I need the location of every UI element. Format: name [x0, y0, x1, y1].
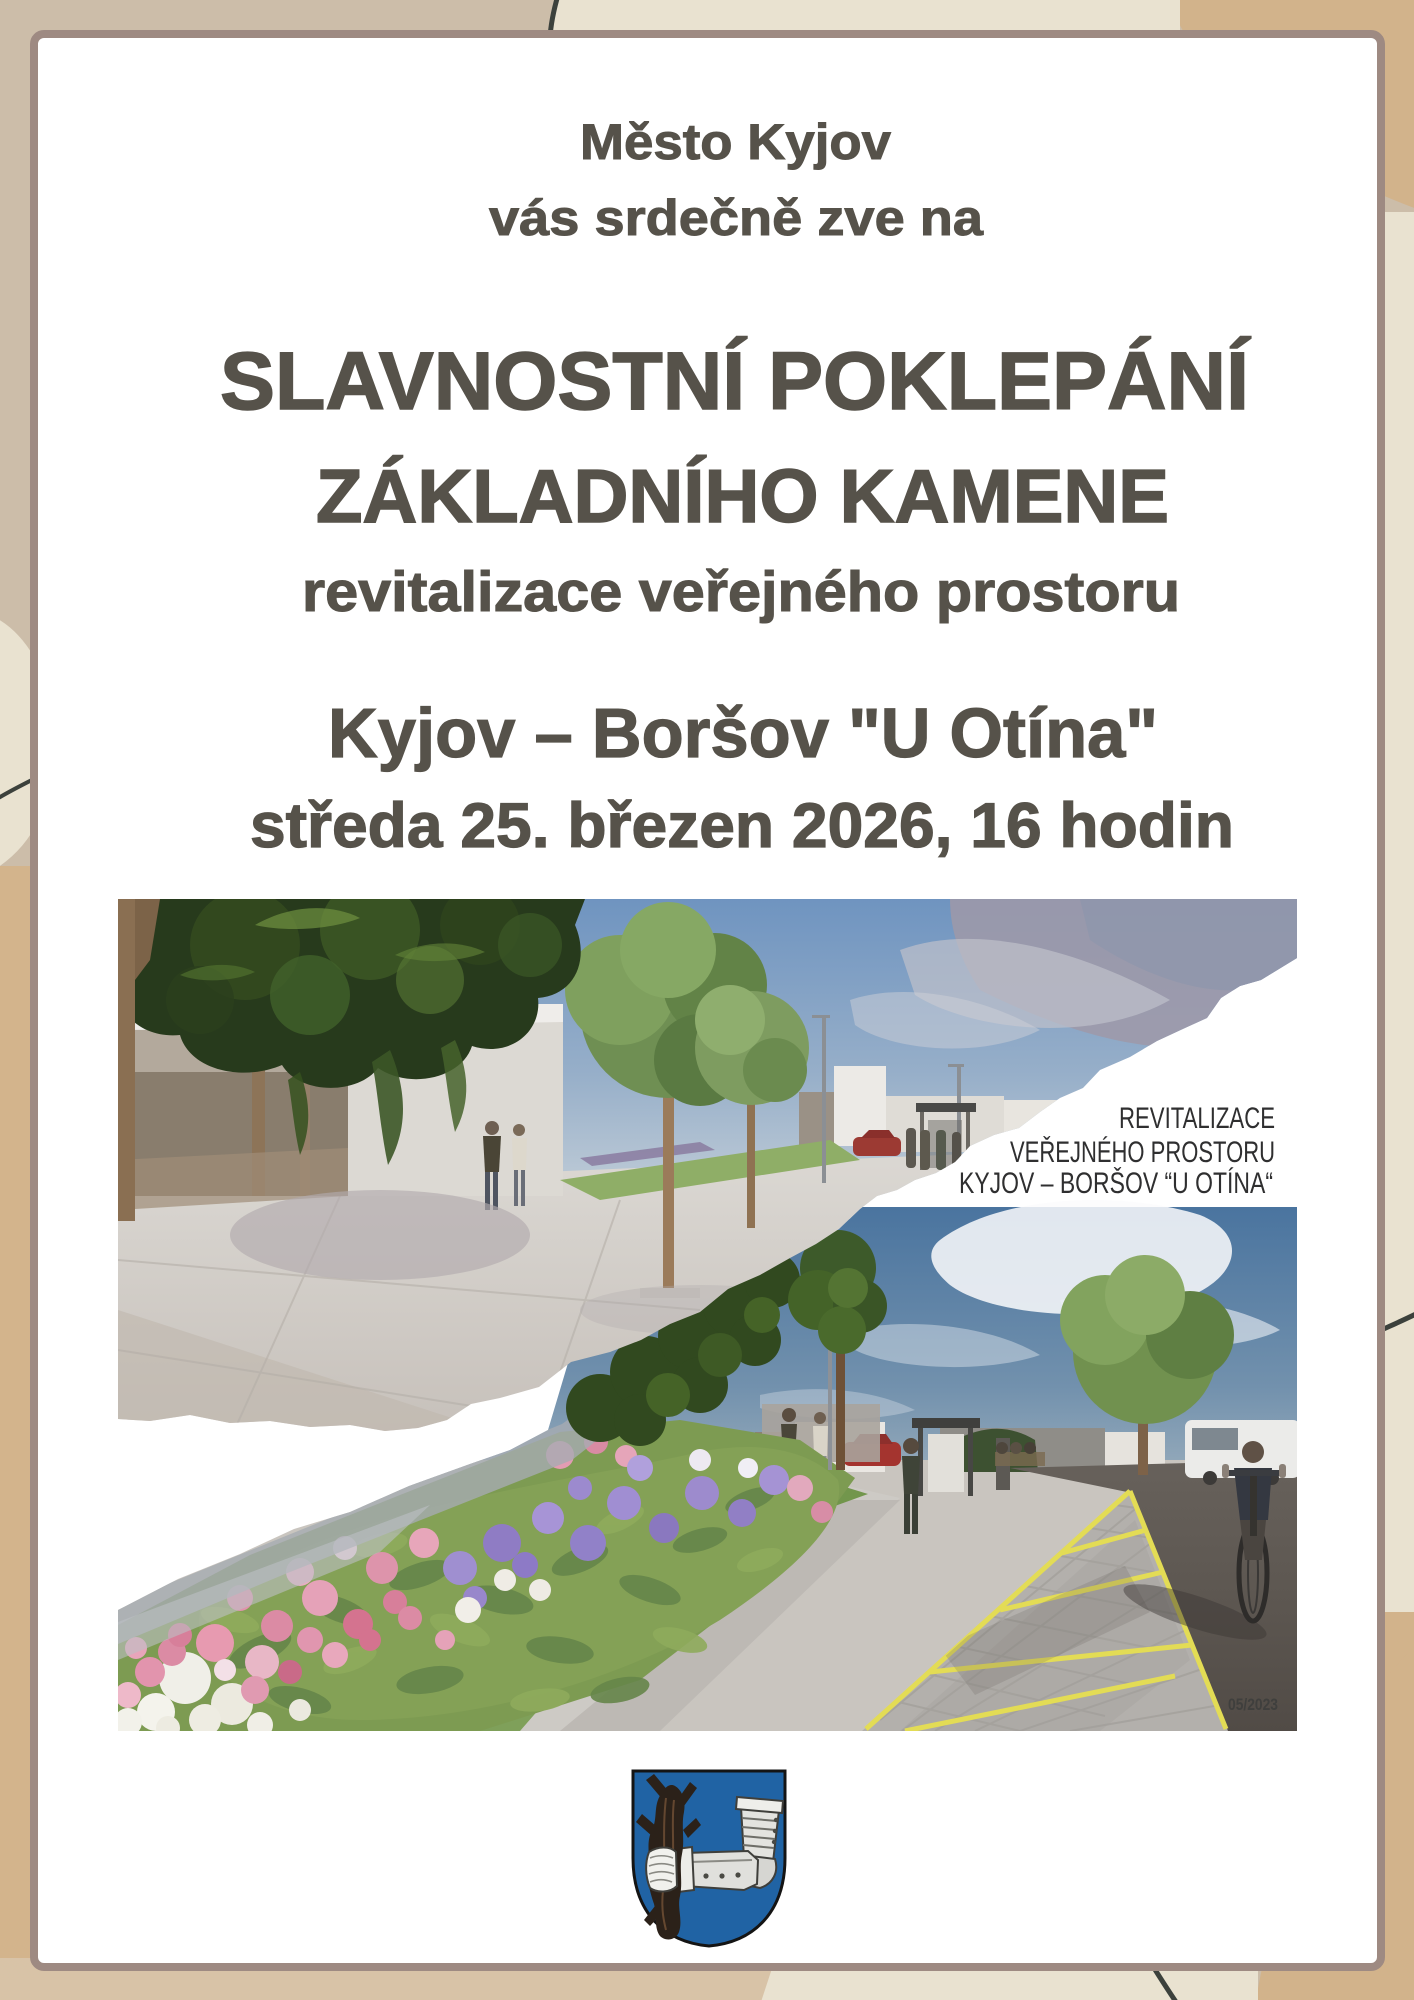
svg-text:SLAVNOSTNÍ POKLEPÁNÍ: SLAVNOSTNÍ POKLEPÁNÍ [220, 336, 1251, 427]
svg-text:Město Kyjov: Město Kyjov [580, 114, 891, 170]
svg-text:Kyjov – Boršov "U Otína": Kyjov – Boršov "U Otína" [328, 694, 1158, 772]
svg-text:05/2023: 05/2023 [1228, 1695, 1278, 1714]
svg-text:KYJOV – BORŠOV “U OTÍNA“: KYJOV – BORŠOV “U OTÍNA“ [959, 1166, 1273, 1200]
svg-text:revitalizace veřejného prostor: revitalizace veřejného prostoru [302, 560, 1180, 624]
svg-text:vás srdečně zve na: vás srdečně zve na [489, 190, 984, 246]
svg-text:středa 25. březen 2026, 16 hod: středa 25. březen 2026, 16 hodin [250, 791, 1234, 861]
svg-text:VEŘEJNÉHO PROSTORU: VEŘEJNÉHO PROSTORU [1010, 1136, 1275, 1169]
svg-text:REVITALIZACE: REVITALIZACE [1119, 1102, 1275, 1135]
svg-text:ZÁKLADNÍHO KAMENE: ZÁKLADNÍHO KAMENE [316, 454, 1169, 538]
